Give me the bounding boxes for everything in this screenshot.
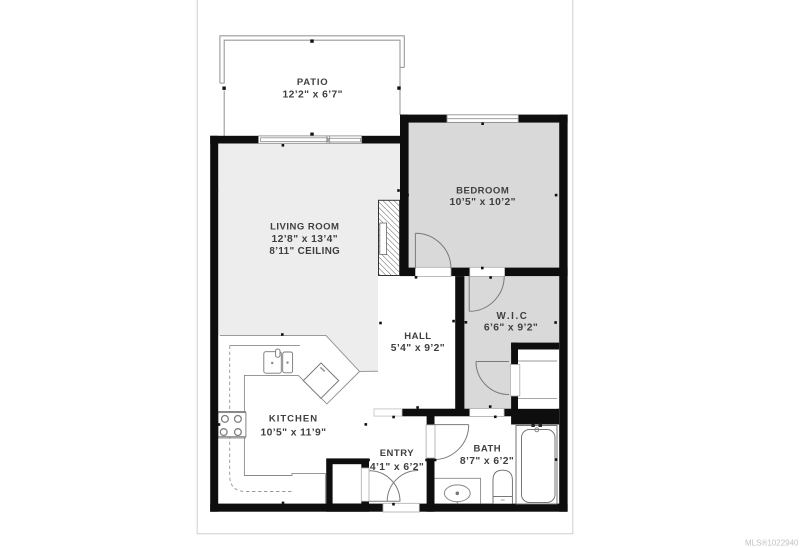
svg-text:ENTRY: ENTRY <box>380 448 415 459</box>
svg-text:BATH: BATH <box>473 444 501 455</box>
svg-text:KITCHEN: KITCHEN <box>269 413 318 424</box>
svg-text:6’6" x 9’2": 6’6" x 9’2" <box>484 323 538 334</box>
svg-text:8’11" CEILING: 8’11" CEILING <box>269 246 340 257</box>
svg-text:MLS®1022940: MLS®1022940 <box>745 539 799 548</box>
svg-text:LIVING ROOM: LIVING ROOM <box>270 221 339 232</box>
svg-text:PATIO: PATIO <box>297 77 329 88</box>
svg-text:5’4" x 9’2": 5’4" x 9’2" <box>391 343 445 354</box>
svg-text:8’7" x 6’2": 8’7" x 6’2" <box>460 456 514 467</box>
svg-text:10’5" x 11’9": 10’5" x 11’9" <box>261 427 327 438</box>
svg-text:W.I.C: W.I.C <box>497 311 529 322</box>
svg-text:12’8" x 13’4": 12’8" x 13’4" <box>272 234 339 245</box>
svg-text:4’1" x 6’2": 4’1" x 6’2" <box>370 462 424 473</box>
svg-text:HALL: HALL <box>404 331 431 342</box>
svg-text:BEDROOM: BEDROOM <box>456 185 509 196</box>
svg-text:12’2" x 6’7": 12’2" x 6’7" <box>283 90 343 101</box>
svg-text:10’5" x 10’2": 10’5" x 10’2" <box>449 197 516 208</box>
